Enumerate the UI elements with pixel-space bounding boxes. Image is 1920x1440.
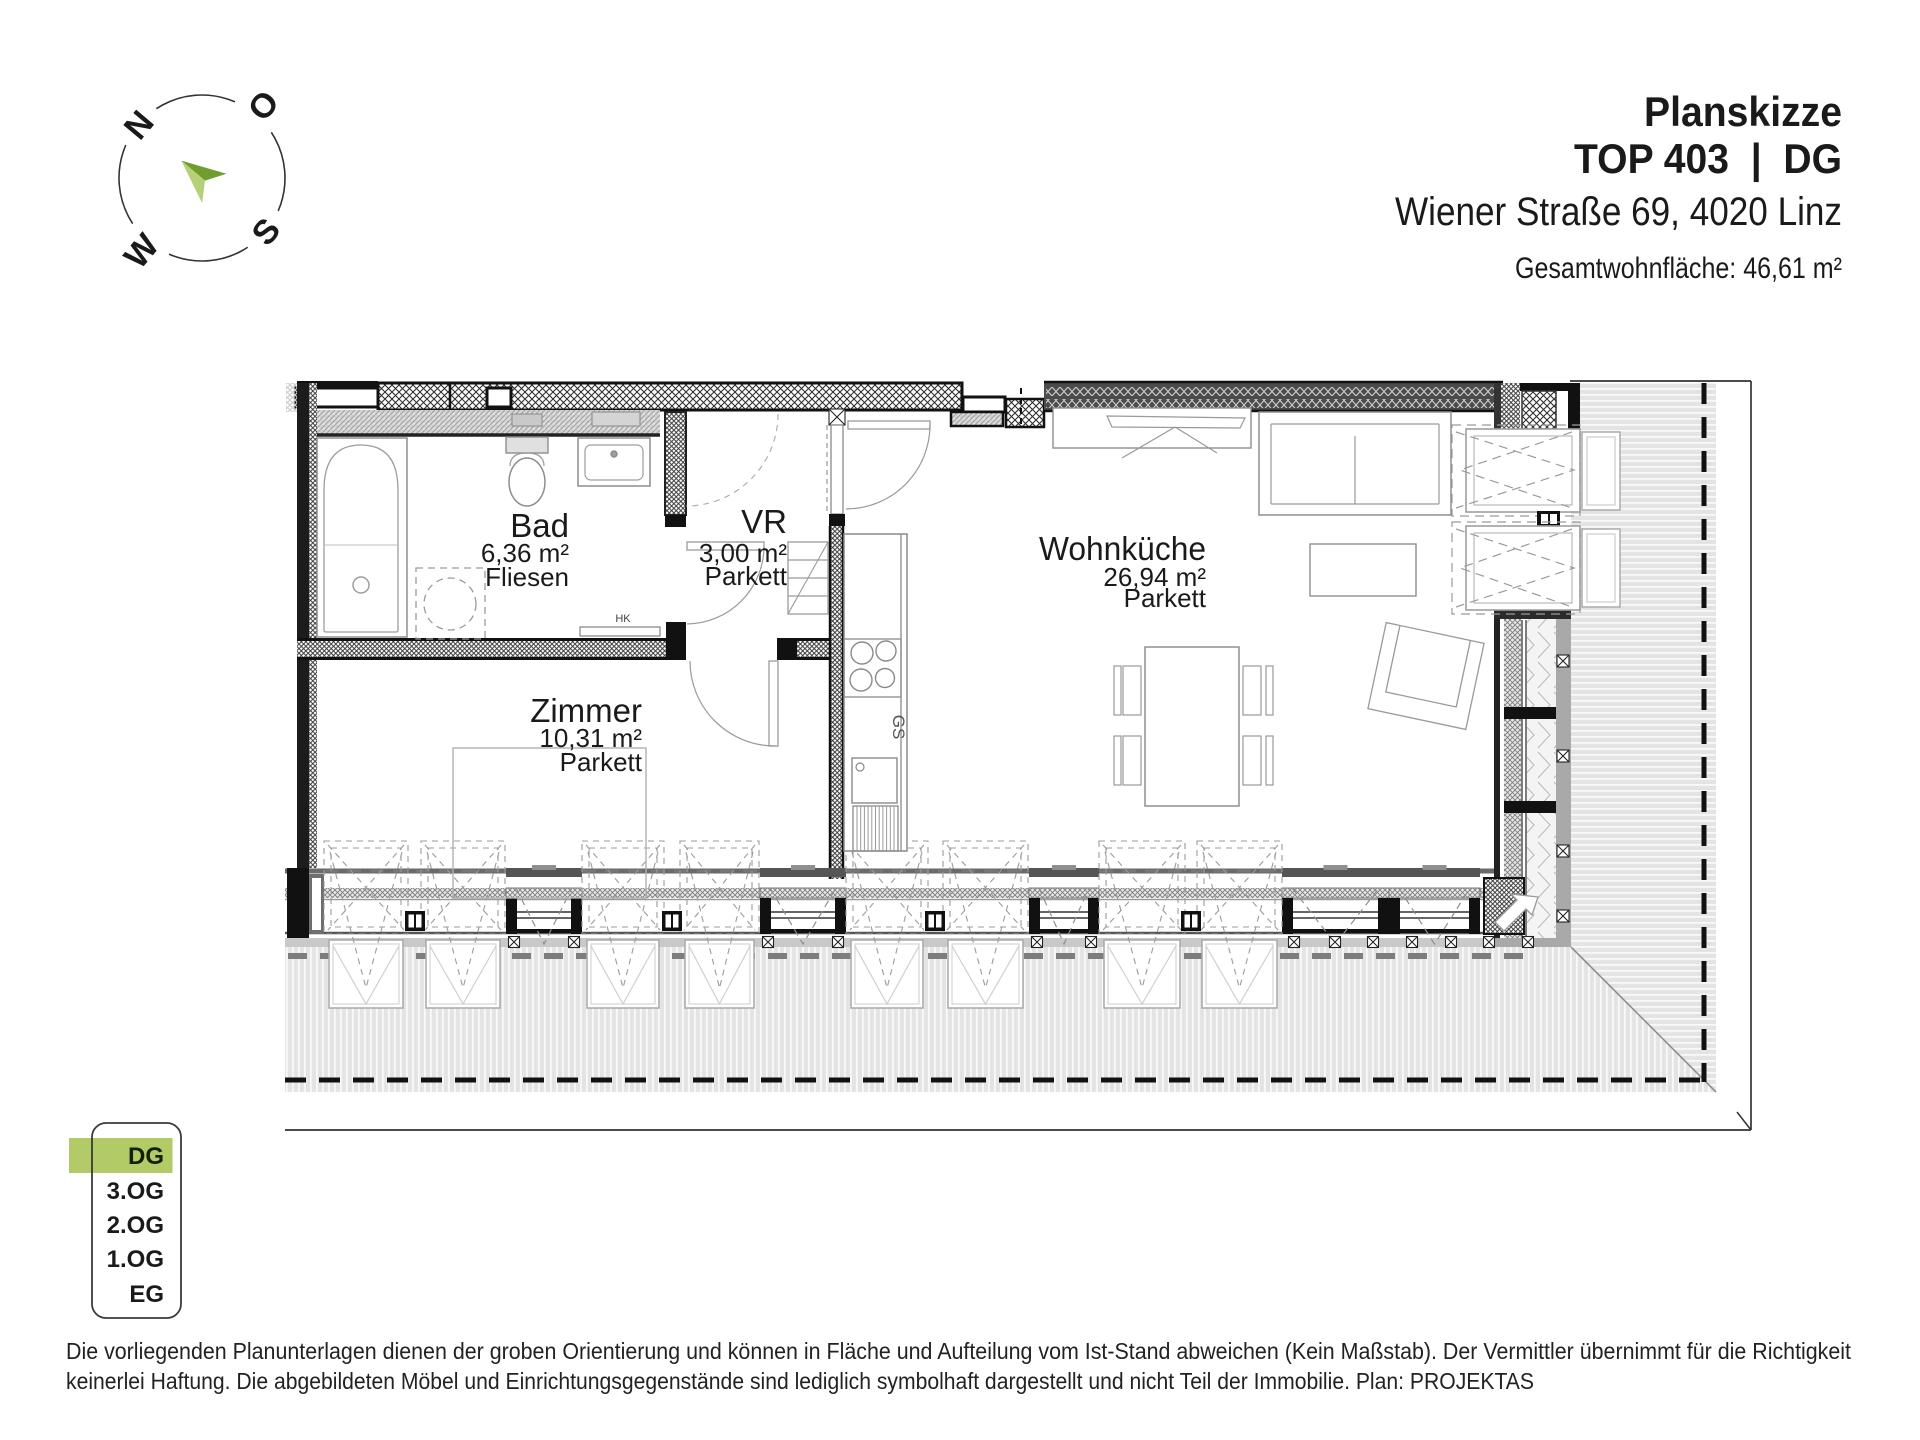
svg-text:Planskizze: Planskizze bbox=[1644, 88, 1842, 135]
svg-text:Wiener Straße 69, 4020 Linz: Wiener Straße 69, 4020 Linz bbox=[1395, 190, 1842, 234]
svg-text:HK: HK bbox=[615, 613, 631, 625]
svg-text:3.OG: 3.OG bbox=[107, 1178, 164, 1205]
svg-text:GS: GS bbox=[889, 715, 908, 740]
svg-text:2.OG: 2.OG bbox=[107, 1212, 164, 1239]
svg-text:VR: VR bbox=[741, 503, 787, 540]
svg-text:Parkett: Parkett bbox=[1124, 583, 1207, 613]
svg-text:Gesamtwohnfläche: 46,61 m²: Gesamtwohnfläche: 46,61 m² bbox=[1515, 252, 1842, 285]
svg-text:TOP 403 | DG: TOP 403 | DG bbox=[1574, 135, 1842, 183]
svg-text:Fliesen: Fliesen bbox=[485, 562, 569, 592]
svg-text:DG: DG bbox=[128, 1143, 164, 1170]
svg-text:EG: EG bbox=[129, 1281, 164, 1308]
svg-text:Die vorliegenden Planunterlage: Die vorliegenden Planunterlagen dienen d… bbox=[66, 1338, 1851, 1364]
svg-text:keinerlei Haftung. Die abgebil: keinerlei Haftung. Die abgebildeten Möbe… bbox=[66, 1368, 1534, 1394]
svg-text:Parkett: Parkett bbox=[705, 561, 788, 591]
svg-text:Parkett: Parkett bbox=[560, 747, 643, 777]
svg-text:1.OG: 1.OG bbox=[107, 1246, 164, 1273]
